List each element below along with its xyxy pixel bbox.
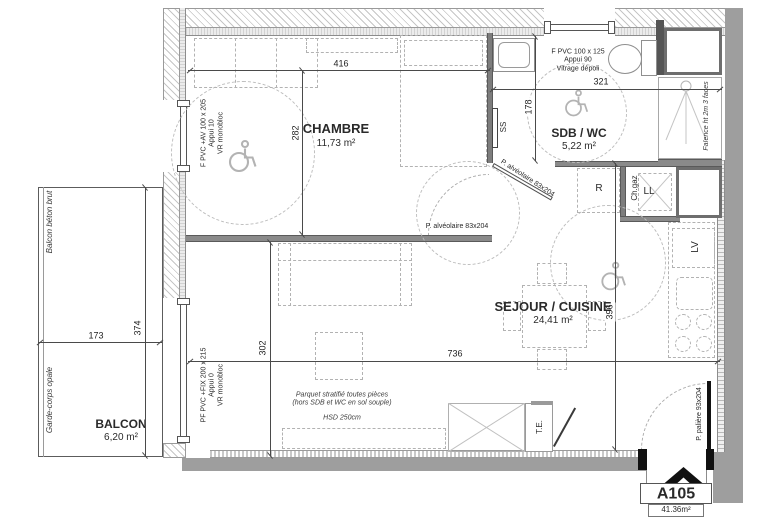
closet-cross xyxy=(448,403,525,452)
window-note-line: PF PVC +FIX 200 x 215 xyxy=(200,348,208,423)
hob-burner xyxy=(696,314,712,330)
sofa-armrest xyxy=(290,243,291,306)
dishwasher-label: LV xyxy=(690,241,702,253)
washbasin-bowl xyxy=(498,42,530,68)
balcony-railing-line xyxy=(43,187,44,457)
sofa-armrest xyxy=(400,243,401,306)
wardrobe-divider xyxy=(276,38,277,88)
washer-label: LL xyxy=(643,186,654,198)
dim-736: 736 xyxy=(445,349,464,360)
toilet-tank xyxy=(641,40,657,76)
sideboard xyxy=(282,428,446,449)
dim-line-173 xyxy=(38,342,162,343)
entry-door-label: P. palière 93x204 xyxy=(696,387,704,441)
entry-door-leaf xyxy=(707,381,711,451)
window-sdb-glazing xyxy=(551,24,608,31)
dim-178: 178 xyxy=(524,97,535,116)
shower-bottom-wall xyxy=(658,159,722,167)
window-note-line: F PVC 100 x 125 xyxy=(551,48,604,56)
wall-entry-corner xyxy=(713,470,743,503)
shelf xyxy=(306,38,398,53)
window-sdb-note: F PVC 100 x 125 Appui 90 Vitrage dépoli xyxy=(551,48,604,73)
wall-bottom-tile-strip xyxy=(210,450,638,458)
window-sdb-post-right xyxy=(608,21,615,34)
wheelchair-icon xyxy=(561,88,591,118)
porch-edge-left xyxy=(646,470,647,484)
window-note-line: Appui 10 xyxy=(209,99,217,167)
bed-pillow xyxy=(404,40,483,66)
electrical-panel-top xyxy=(531,401,553,405)
dim-line-374 xyxy=(145,187,146,456)
towel-rail xyxy=(492,108,498,148)
wheelchair-icon xyxy=(224,138,260,174)
wall-bottom-right xyxy=(714,452,743,471)
dim-line-321 xyxy=(491,89,722,90)
chair xyxy=(537,349,567,370)
electrical-panel-label: T.E. xyxy=(535,420,545,434)
wardrobe xyxy=(194,38,318,88)
window-sejour-note: PF PVC +FIX 200 x 215 Appui 0 VR monoblo… xyxy=(200,348,225,423)
balcony-floor-note: Balcon béton brut xyxy=(45,191,55,254)
window-sejour-post-top xyxy=(177,298,190,305)
dim-line-178 xyxy=(535,36,536,161)
window-note-line: F PVC +AV 100 x 205 xyxy=(200,99,208,167)
kitchen-sink xyxy=(676,277,713,310)
dim-282: 282 xyxy=(291,123,302,142)
floor-note-line: (hors SDB et WC en sol souple) xyxy=(292,400,391,408)
unit-area: 41.36m² xyxy=(661,505,690,515)
hob-burner xyxy=(696,336,712,352)
window-gap-sdb xyxy=(544,8,615,36)
window-note-line: Appui 0 xyxy=(209,348,217,423)
chambre-name: CHAMBRE xyxy=(303,121,369,137)
sejour-area: 24,41 m² xyxy=(533,315,572,327)
fridge-label: R xyxy=(595,183,602,195)
wheelchair-icon xyxy=(597,260,629,292)
towel-rail-label: SS xyxy=(499,122,509,133)
tiling-note: Faïence ht 2m 3 faces xyxy=(703,81,711,150)
chambre-area: 11,73 m² xyxy=(317,138,356,150)
window-sejour-post-bottom xyxy=(177,436,190,443)
entry-jamb-right xyxy=(706,449,714,470)
dim-173: 173 xyxy=(86,331,105,342)
floor-note-line: Parquet stratifié toutes pièces xyxy=(292,391,391,399)
dim-line-282 xyxy=(302,70,303,235)
floor-note-line: HSD 250cm xyxy=(292,414,391,422)
window-note-line: Appui 90 xyxy=(551,57,604,65)
dim-line-736 xyxy=(188,361,720,362)
sofa xyxy=(278,243,412,306)
railing-note: Garde-corps opale xyxy=(45,367,55,433)
sdb-name: SDB / WC xyxy=(551,126,606,140)
wall-right xyxy=(725,8,743,470)
boiler-label: Ch.gaz xyxy=(630,175,640,200)
wardrobe-divider xyxy=(235,38,236,88)
dim-302: 302 xyxy=(258,338,269,357)
duct-box-kitchen xyxy=(676,167,722,218)
duct-box-top xyxy=(664,28,722,75)
sejour-name: SEJOUR / CUISINE xyxy=(494,299,611,315)
wall-bottom xyxy=(182,458,647,471)
dim-line-302 xyxy=(270,242,271,456)
sofa-back-line xyxy=(278,260,412,261)
window-note-line: VR monobloc xyxy=(217,99,225,167)
floor-plan: Balcon béton brut Garde-corps opale BALC… xyxy=(0,0,768,530)
window-chambre-note: F PVC +AV 100 x 205 Appui 10 VR monobloc xyxy=(200,99,225,167)
unit-number: A105 xyxy=(657,484,695,503)
coffee-table xyxy=(315,332,363,380)
dim-374: 374 xyxy=(133,318,144,337)
hall-door-stroke xyxy=(553,408,576,447)
balcony-name: BALCON xyxy=(95,417,146,431)
chambre-door-label: P. alvéolaire 83x204 xyxy=(426,223,489,231)
window-note-line: VR monobloc xyxy=(217,348,225,423)
balcony-area: 6,20 m² xyxy=(104,432,138,444)
wc-niche-wall xyxy=(656,20,664,75)
window-sejour-glazing xyxy=(180,305,187,436)
window-note-line: Vitrage dépoli xyxy=(551,65,604,73)
toilet-bowl xyxy=(608,44,642,74)
dim-321: 321 xyxy=(591,77,610,88)
chair xyxy=(537,263,567,284)
wall-bottom-left-corner xyxy=(163,443,186,458)
sdb-area: 5,22 m² xyxy=(562,141,596,153)
hob-burner xyxy=(675,336,691,352)
floor-note: Parquet stratifié toutes pièces (hors SD… xyxy=(292,391,391,422)
hob-burner xyxy=(675,314,691,330)
window-sdb-post-left xyxy=(544,21,551,34)
entry-jamb-left xyxy=(638,449,647,470)
dim-416: 416 xyxy=(331,59,350,70)
dim-line-416 xyxy=(188,70,490,71)
